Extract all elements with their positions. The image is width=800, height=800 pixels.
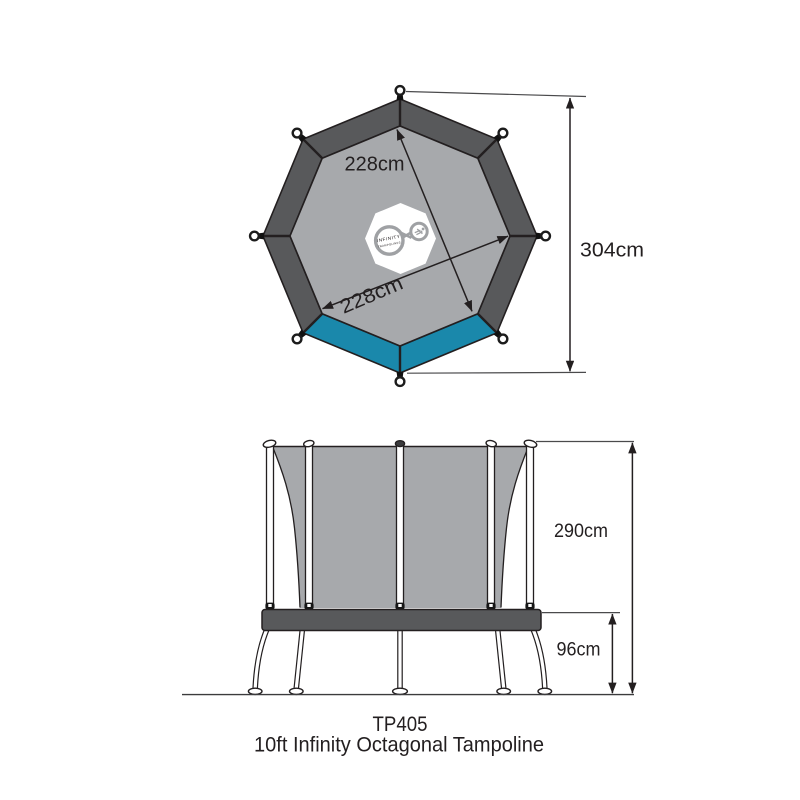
svg-text:304cm: 304cm	[580, 240, 644, 262]
svg-text:10ft Infinity Octagonal Tampol: 10ft Infinity Octagonal Tampoline	[254, 734, 544, 757]
svg-text:96cm: 96cm	[557, 639, 601, 661]
svg-text:290cm: 290cm	[554, 520, 608, 542]
svg-text:228cm: 228cm	[345, 154, 405, 176]
